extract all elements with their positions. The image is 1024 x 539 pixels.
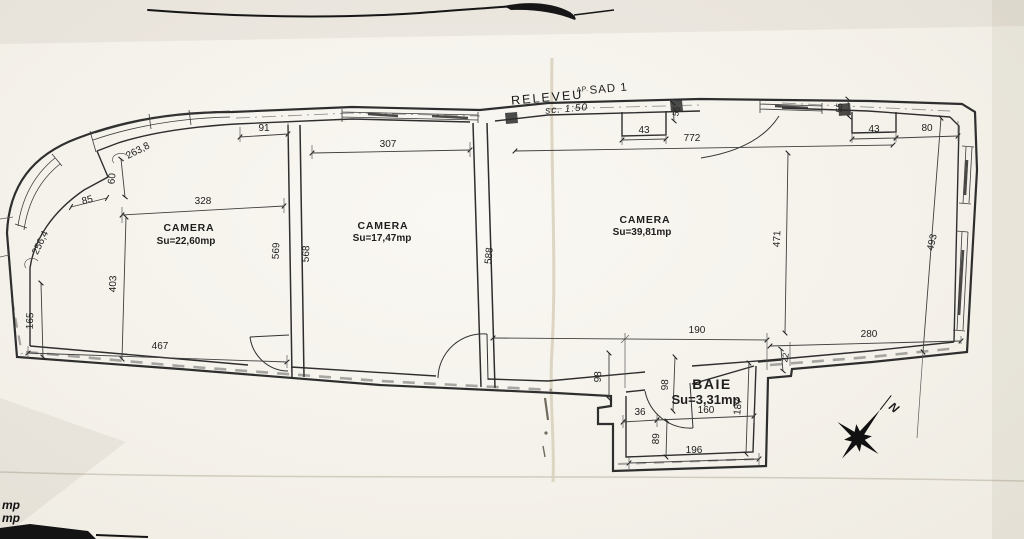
compass-north-label: N <box>886 399 902 416</box>
room2-name: CAMERA <box>358 220 409 232</box>
inner-wall-right <box>950 117 959 342</box>
dim-588: 588 <box>483 247 495 265</box>
corner-smudge <box>0 524 96 539</box>
dim-43-right: 43 <box>868 124 880 135</box>
cutoff-line-1: mp <box>2 498 20 512</box>
dim-98-inner: 98 <box>660 379 672 391</box>
window-curve-low <box>15 154 62 230</box>
dim-467: 467 <box>152 341 169 352</box>
dim-772: 772 <box>684 133 701 144</box>
wall-pier <box>505 112 518 124</box>
room3-name: CAMERA <box>620 214 671 226</box>
room-labels: CAMERA Su=22,60mp CAMERA Su=17,47mp CAME… <box>157 214 741 407</box>
room3-area: Su=39,81mp <box>613 227 672 238</box>
room1-area: Su=22,60mp <box>157 236 216 247</box>
door-room1-leaf <box>250 335 289 337</box>
bathroom-name: BAIE <box>692 376 731 392</box>
dim-569: 569 <box>271 242 283 260</box>
dim-22: 22 <box>779 352 791 363</box>
dimension-labels: 91 263,8 60 85 256,4 328 307 772 43 55 4… <box>25 102 940 456</box>
dim-85: 85 <box>81 194 95 207</box>
dim-493: 493 <box>925 233 940 252</box>
dim-196: 196 <box>686 445 703 456</box>
dim-190: 190 <box>689 325 706 336</box>
cutoff-edge-text: mp mp <box>2 498 20 525</box>
dim-280: 280 <box>861 329 878 340</box>
dim-55-right: 55 <box>834 102 845 113</box>
compass-rose <box>822 379 912 474</box>
door-room2-leaf <box>487 334 488 380</box>
dim-91: 91 <box>258 123 270 134</box>
paper-artifacts <box>0 0 1024 539</box>
windows <box>15 101 974 331</box>
title-unit: SAD 1 <box>589 82 628 97</box>
extension-lines <box>0 121 961 469</box>
door-room1-arc <box>250 337 288 371</box>
scanned-floorplan-page: 91 263,8 60 85 256,4 328 307 772 43 55 4… <box>0 0 1024 539</box>
fold-crease <box>551 58 554 482</box>
dim-43-mid: 43 <box>638 125 650 136</box>
dim-55-mid: 55 <box>670 106 682 117</box>
dim-328: 328 <box>195 196 212 207</box>
walls <box>7 99 977 471</box>
room2-area: Su=17,47mp <box>353 233 412 244</box>
dim-80: 80 <box>921 123 933 134</box>
dim-98-outer: 98 <box>593 371 605 383</box>
dim-568: 568 <box>301 245 313 263</box>
dim-471: 471 <box>772 230 784 248</box>
window-top-right-sash <box>775 106 808 108</box>
dim-165: 165 <box>25 312 37 329</box>
title-ap: AP. <box>576 86 588 94</box>
dim-307: 307 <box>380 139 397 150</box>
dim-263-8: 263,8 <box>124 140 152 161</box>
crease-mark <box>545 398 548 420</box>
dim-60: 60 <box>106 172 118 185</box>
cutoff-line-2: mp <box>2 511 20 525</box>
dimension-lines <box>0 99 961 469</box>
dim-256-4: 256,4 <box>30 229 51 257</box>
floorplan-drawing: 91 263,8 60 85 256,4 328 307 772 43 55 4… <box>0 0 1024 539</box>
bathroom-area: Su=3,31mp <box>671 392 740 407</box>
dim-36: 36 <box>634 407 646 418</box>
dim-403: 403 <box>108 275 120 292</box>
dim-89: 89 <box>651 433 663 445</box>
room1-name: CAMERA <box>164 222 215 234</box>
door-room3-arc <box>701 116 779 158</box>
